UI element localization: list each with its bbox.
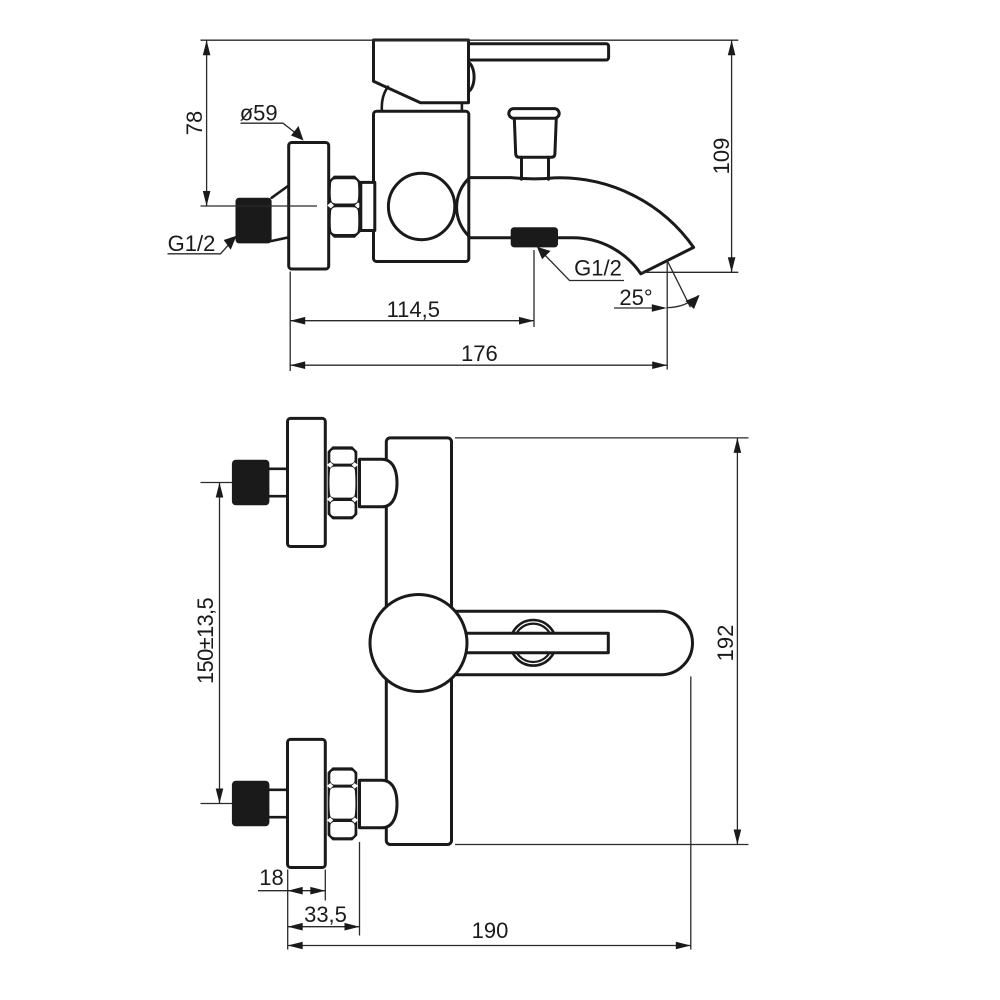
svg-text:150±13,5: 150±13,5: [193, 598, 218, 684]
svg-text:190: 190: [472, 918, 509, 943]
svg-text:G1/2: G1/2: [168, 231, 216, 256]
svg-text:G1/2: G1/2: [574, 256, 622, 281]
svg-text:192: 192: [713, 625, 738, 662]
svg-text:18: 18: [259, 865, 283, 890]
svg-text:33,5: 33,5: [304, 902, 347, 927]
svg-text:25°: 25°: [619, 285, 652, 310]
svg-text:176: 176: [461, 341, 498, 366]
svg-text:ø59: ø59: [240, 101, 278, 126]
svg-text:78: 78: [182, 111, 207, 135]
svg-text:114,5: 114,5: [387, 297, 440, 322]
svg-text:109: 109: [709, 138, 734, 175]
